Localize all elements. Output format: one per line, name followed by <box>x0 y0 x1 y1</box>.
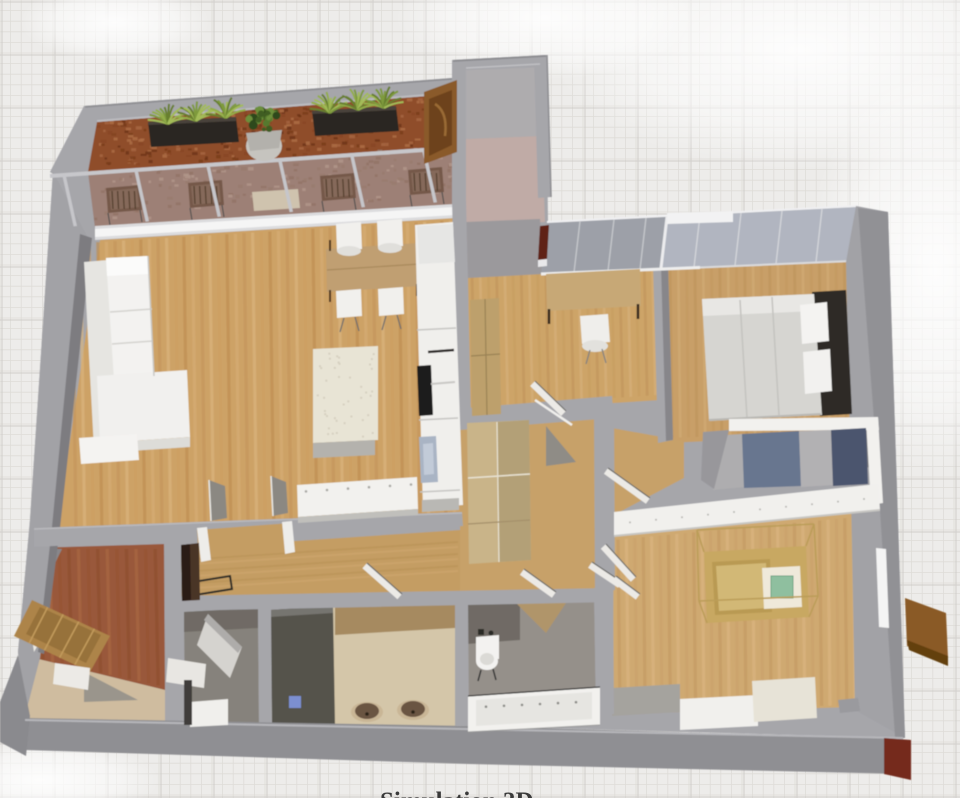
svg-text:Simulation 3D: Simulation 3D <box>380 788 534 798</box>
